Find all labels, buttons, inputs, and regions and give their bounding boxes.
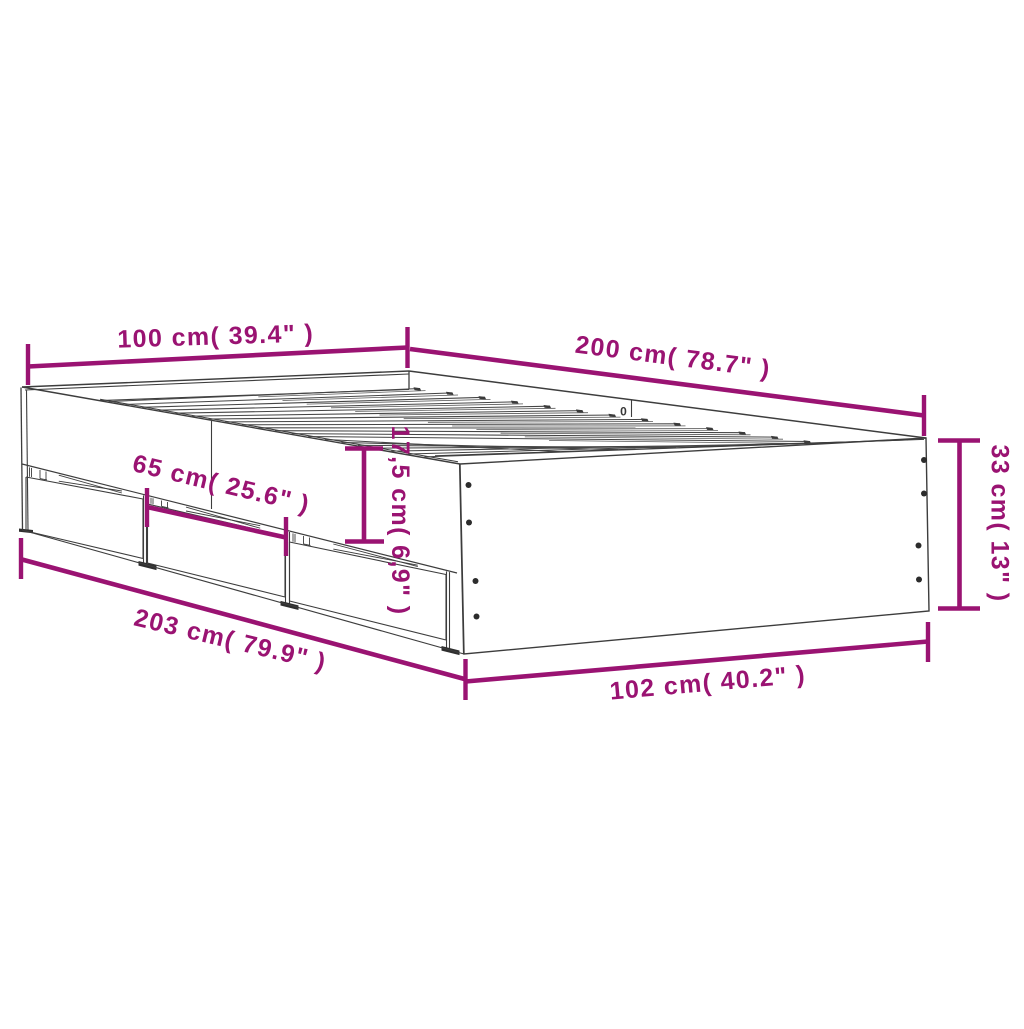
svg-text:33 cm( 13" ): 33 cm( 13" )	[986, 445, 1014, 603]
svg-text:100 cm( 39.4" ): 100 cm( 39.4" )	[117, 319, 315, 353]
svg-text:17,5 cm( 6,9" ): 17,5 cm( 6,9" )	[386, 426, 414, 616]
svg-text:0: 0	[620, 405, 627, 419]
